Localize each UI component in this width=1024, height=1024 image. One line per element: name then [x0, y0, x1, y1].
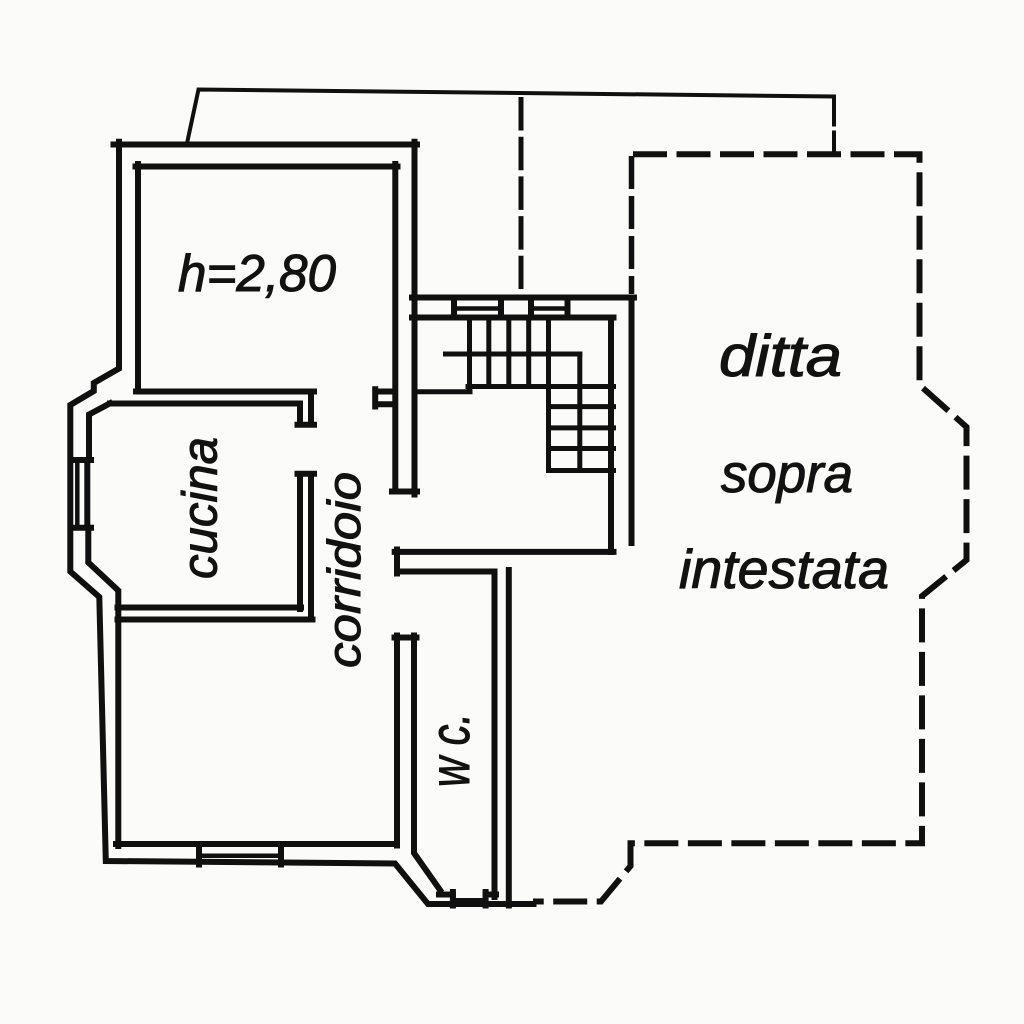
svg-text:sopra: sopra: [721, 444, 853, 504]
svg-text:corridoio: corridoio: [318, 472, 370, 668]
svg-text:w c.: w c.: [418, 713, 481, 787]
svg-text:h=2,80: h=2,80: [178, 244, 336, 302]
svg-text:intestata: intestata: [679, 538, 889, 600]
svg-text:cucina: cucina: [174, 437, 228, 579]
svg-text:ditta: ditta: [719, 324, 842, 389]
